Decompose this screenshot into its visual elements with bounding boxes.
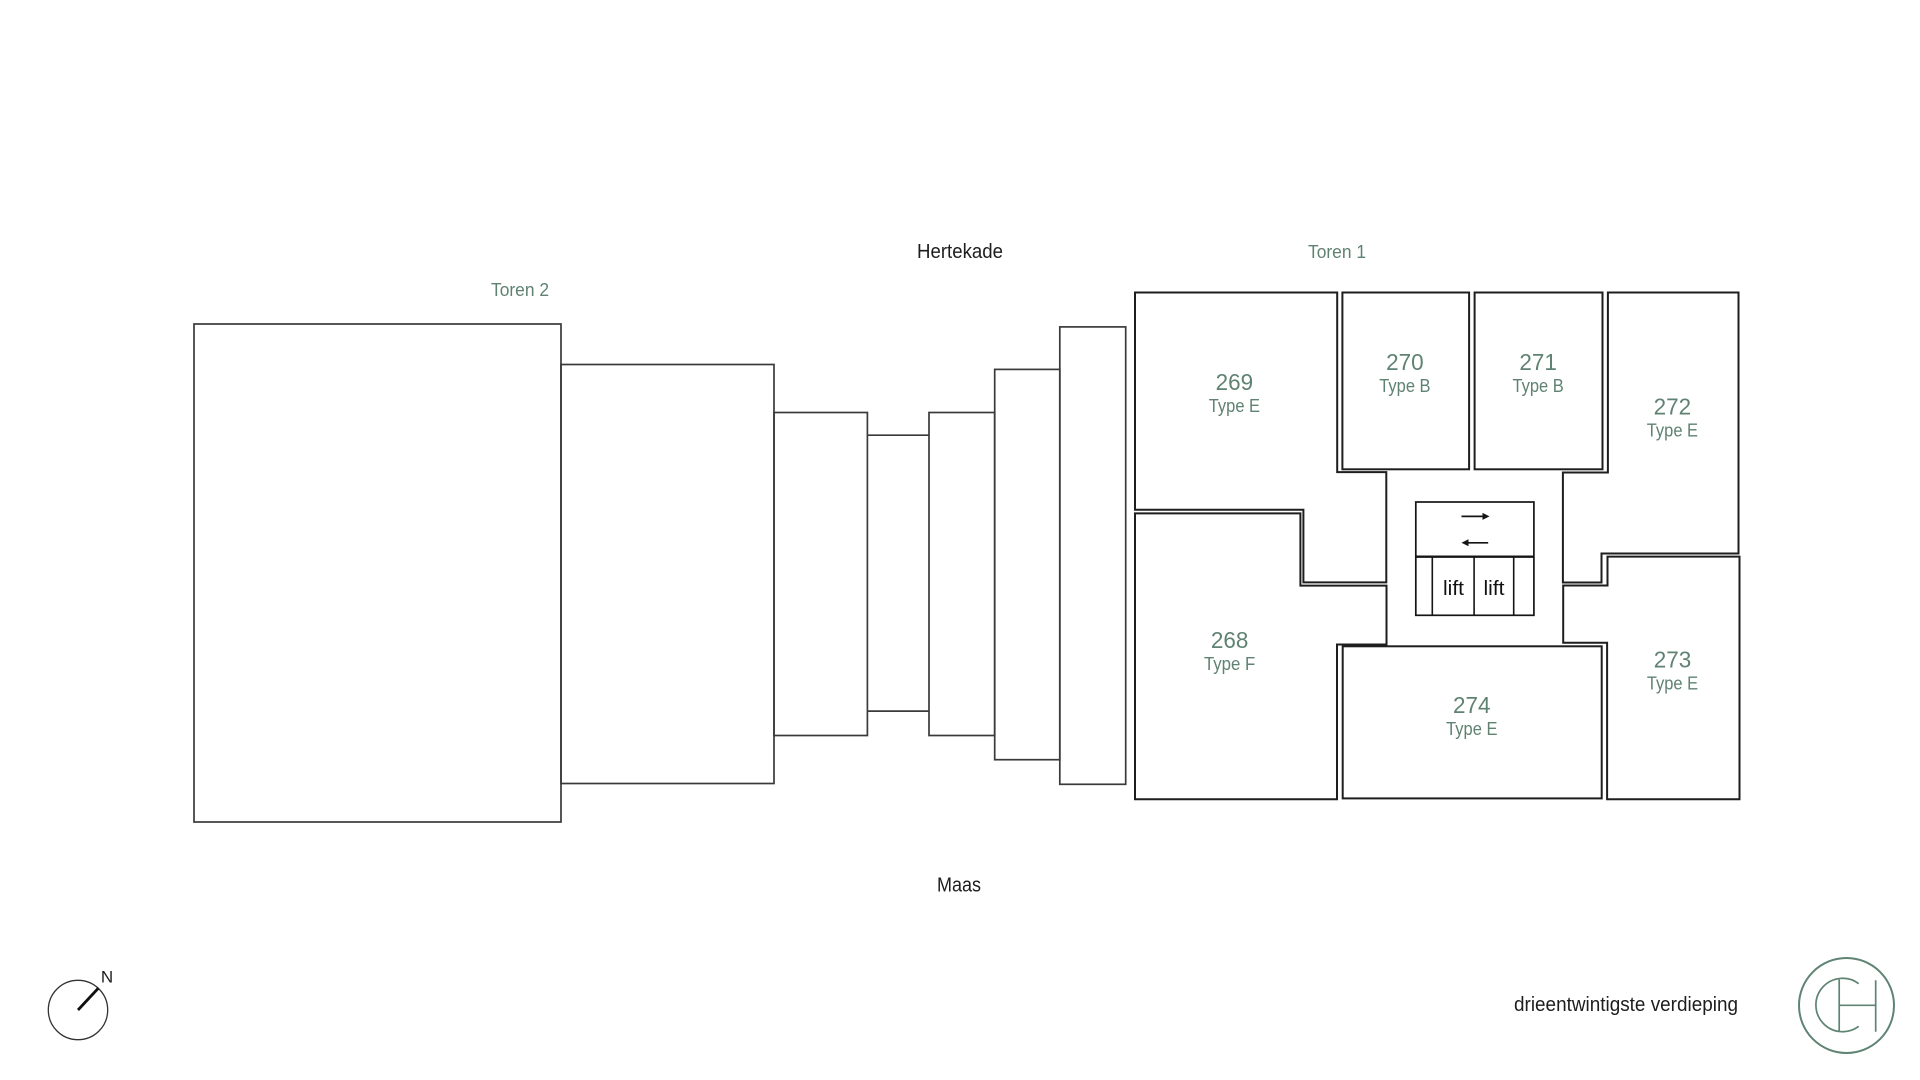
- svg-text:Hertekade: Hertekade: [917, 240, 1003, 263]
- svg-text:Type E: Type E: [1209, 396, 1260, 416]
- svg-text:273: 273: [1654, 647, 1692, 673]
- svg-text:lift: lift: [1443, 578, 1464, 600]
- svg-text:Maas: Maas: [937, 874, 981, 897]
- svg-text:268: 268: [1211, 627, 1249, 653]
- svg-text:Type E: Type E: [1446, 719, 1497, 739]
- svg-text:Type E: Type E: [1647, 674, 1698, 694]
- svg-text:Type F: Type F: [1204, 654, 1255, 674]
- svg-text:Toren 2: Toren 2: [491, 279, 549, 300]
- svg-text:N: N: [101, 968, 113, 987]
- svg-text:Type B: Type B: [1379, 376, 1430, 396]
- svg-text:drieentwintigste verdieping: drieentwintigste verdieping: [1514, 994, 1738, 1016]
- svg-text:lift: lift: [1484, 578, 1505, 600]
- svg-text:272: 272: [1654, 394, 1692, 420]
- svg-text:Toren 1: Toren 1: [1308, 241, 1366, 262]
- svg-text:269: 269: [1216, 369, 1254, 395]
- svg-text:271: 271: [1519, 349, 1557, 375]
- svg-text:270: 270: [1386, 349, 1424, 375]
- svg-text:Type B: Type B: [1512, 376, 1563, 396]
- svg-text:274: 274: [1453, 692, 1491, 718]
- svg-text:Type E: Type E: [1647, 421, 1698, 441]
